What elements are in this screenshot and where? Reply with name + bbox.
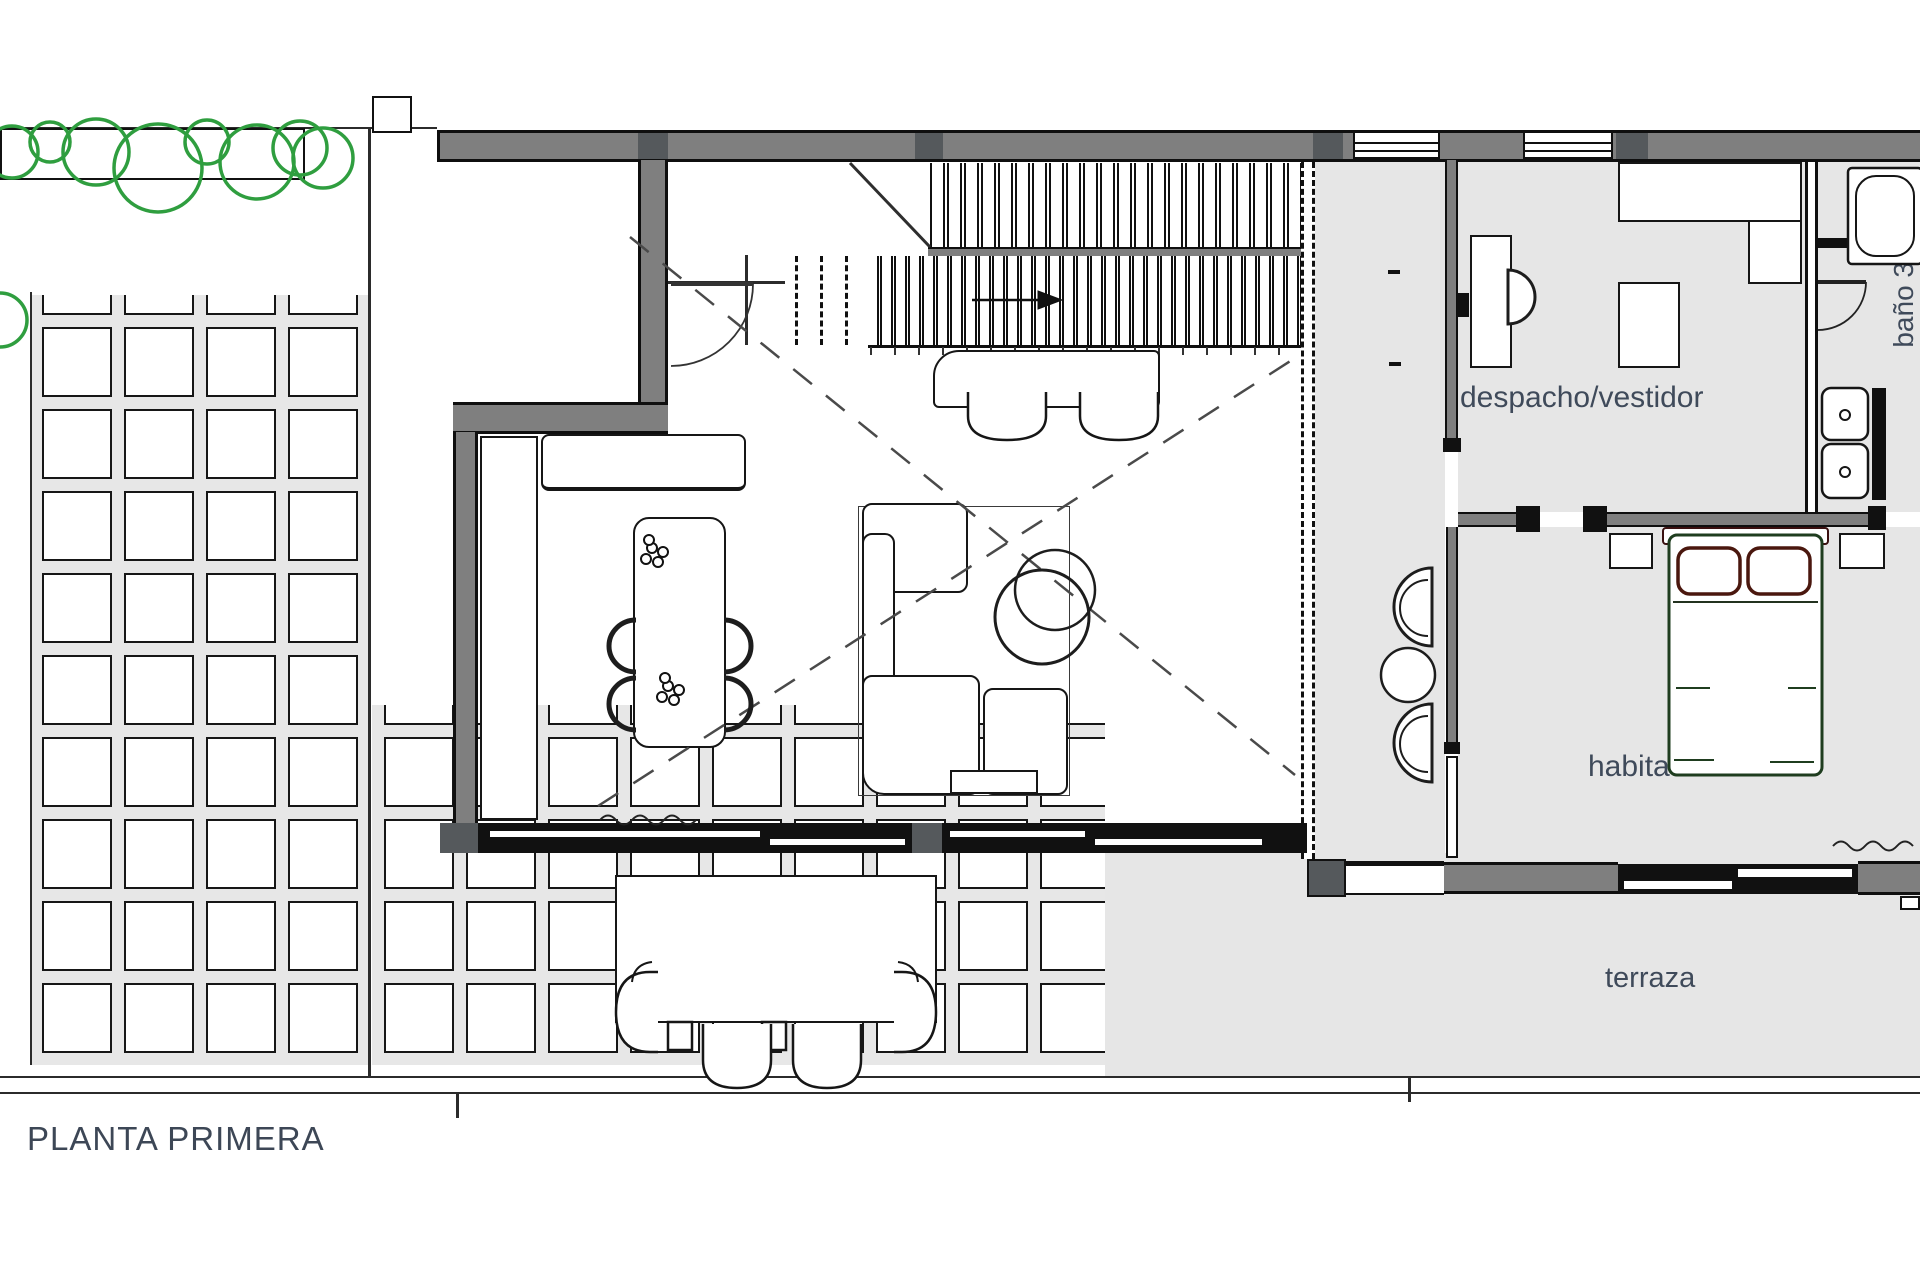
tree-icons bbox=[0, 119, 353, 347]
stair-break-line bbox=[850, 163, 930, 247]
bathtub bbox=[1848, 168, 1920, 264]
gallery-armchairs bbox=[1381, 568, 1435, 782]
understair-chairs bbox=[968, 392, 1158, 440]
dining-chairs bbox=[609, 620, 751, 730]
void-dashed-lines bbox=[598, 237, 1295, 806]
flower-decor bbox=[641, 535, 684, 705]
bed bbox=[1663, 528, 1828, 775]
bath-door-swing bbox=[1818, 282, 1866, 330]
desk-chair bbox=[1508, 270, 1535, 324]
plan-overlay bbox=[0, 0, 1920, 1280]
terrace-chairs bbox=[616, 962, 936, 1088]
round-chair bbox=[995, 550, 1095, 664]
break-wave bbox=[600, 816, 696, 825]
bath-sinks bbox=[1822, 388, 1868, 498]
stair-direction-arrow bbox=[972, 291, 1062, 309]
break-wave bbox=[1833, 842, 1913, 851]
floor-plan-canvas: despacho/vestidor habitación 3 terraza b… bbox=[0, 0, 1920, 1280]
